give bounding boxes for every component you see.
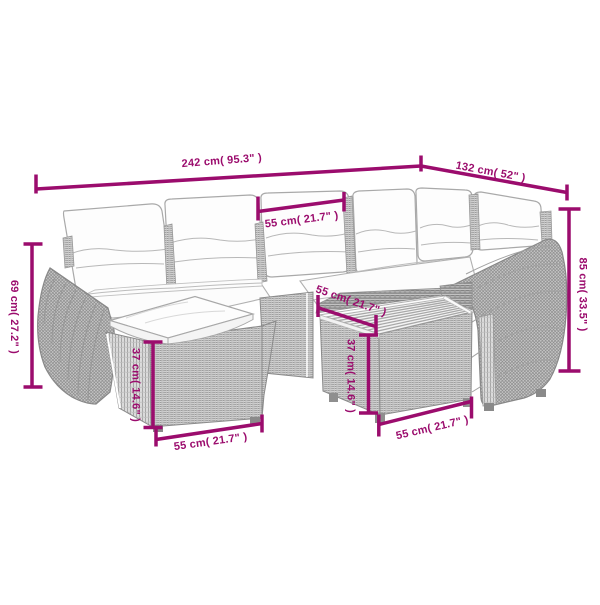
svg-text:37 cm( 14.6" ): 37 cm( 14.6" ) xyxy=(345,339,357,413)
svg-text:85 cm( 33.5" ): 85 cm( 33.5" ) xyxy=(577,257,589,331)
svg-text:69 cm( 27.2" ): 69 cm( 27.2" ) xyxy=(8,280,20,354)
svg-text:37 cm( 14.6" ): 37 cm( 14.6" ) xyxy=(130,348,142,422)
